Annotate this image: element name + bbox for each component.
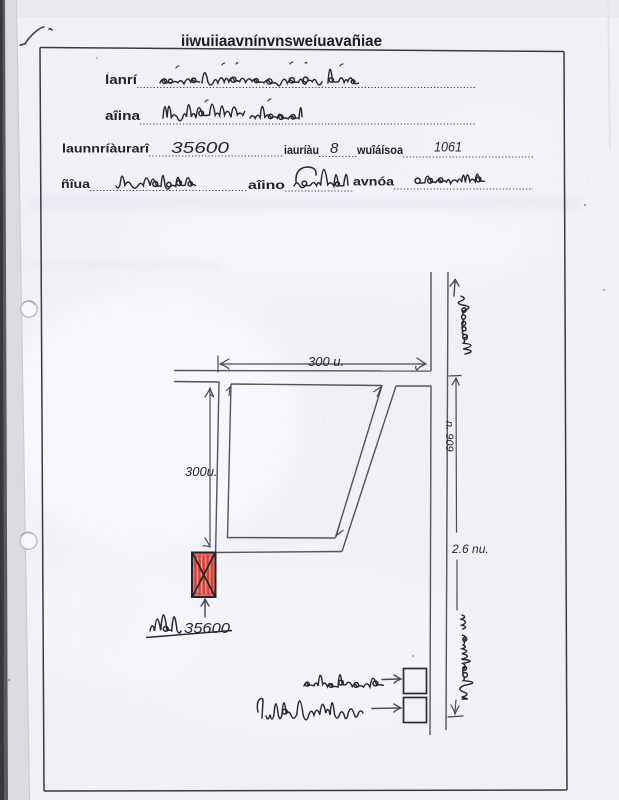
svg-text:wuîáísoa: wuîáísoa <box>356 143 403 157</box>
svg-text:iauríàu: iauríàu <box>284 143 319 157</box>
svg-text:lanrí: lanrí <box>105 73 138 87</box>
svg-text:ñîua: ñîua <box>61 177 90 191</box>
svg-text:avnóa: avnóa <box>353 175 394 189</box>
svg-text:aîina: aîina <box>105 109 141 123</box>
svg-text:300u.: 300u. <box>185 464 218 479</box>
svg-text:iiwuiiaavnínvnsweíuavañiae: iiwuiiaavnínvnsweíuavañiae <box>181 33 382 50</box>
svg-text:2.6 nu.: 2.6 nu. <box>451 542 489 556</box>
svg-text:8: 8 <box>330 140 339 157</box>
svg-text:35600: 35600 <box>171 140 229 157</box>
svg-text:1061: 1061 <box>434 139 462 155</box>
svg-text:aîino: aîino <box>248 178 285 192</box>
svg-text:n. 909: n. 909 <box>443 421 455 452</box>
svg-text:300 u.: 300 u. <box>308 354 344 369</box>
svg-text:launnríàurarî: launnríàurarî <box>62 142 150 156</box>
